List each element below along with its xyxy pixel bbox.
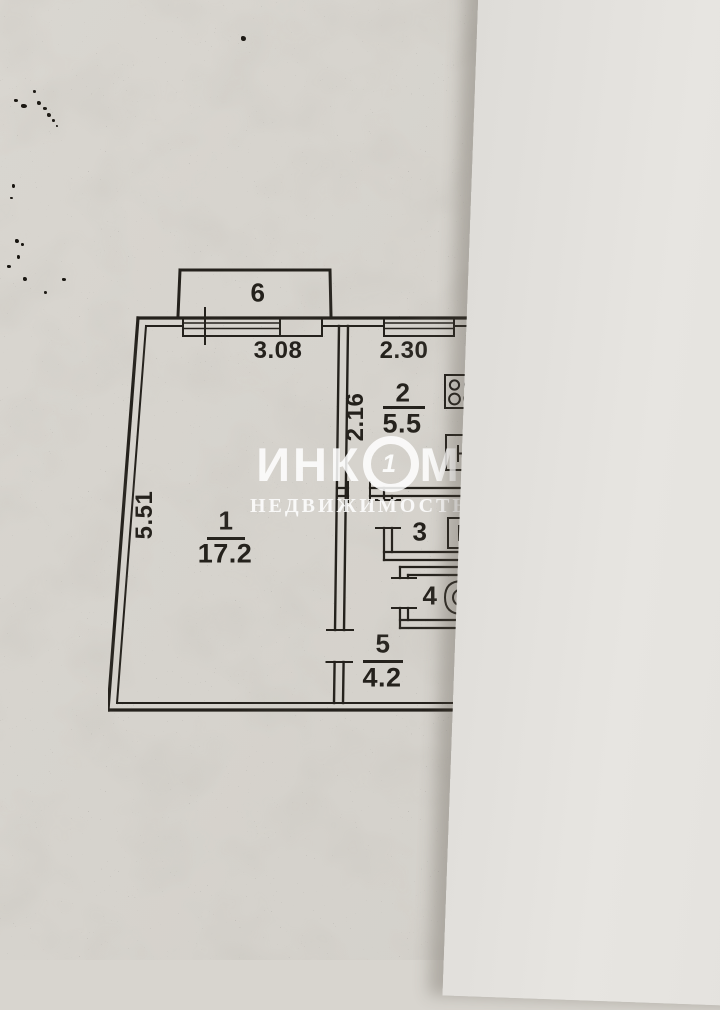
ink-speck bbox=[10, 197, 13, 199]
ink-speck bbox=[43, 107, 47, 110]
hall-number: 5 bbox=[376, 629, 391, 660]
ink-speck bbox=[7, 265, 11, 268]
balcony-number: 6 bbox=[251, 278, 266, 309]
kitchen-width-dim: 2.30 bbox=[380, 337, 429, 365]
ink-speck bbox=[52, 119, 55, 122]
plan-drawing bbox=[108, 260, 508, 720]
bathroom-number: 3 bbox=[413, 517, 428, 548]
toilet-number: 4 bbox=[423, 581, 438, 612]
ink-speck bbox=[37, 101, 41, 105]
living-number: 1 bbox=[219, 506, 234, 537]
ink-speck bbox=[12, 184, 15, 188]
ink-speck bbox=[241, 36, 246, 41]
walls bbox=[108, 270, 507, 710]
ink-speck bbox=[23, 277, 27, 281]
kitchen-depth-dim: 2.16 bbox=[342, 393, 370, 442]
ink-speck bbox=[56, 125, 58, 127]
living-hall-wall bbox=[327, 326, 354, 703]
kitchen-window-hatch bbox=[384, 318, 454, 336]
kitchen-area: 5.5 bbox=[382, 409, 421, 440]
living-area: 17.2 bbox=[198, 539, 253, 570]
ink-speck bbox=[62, 278, 66, 281]
ink-speck bbox=[44, 291, 47, 294]
ink-speck bbox=[21, 104, 27, 108]
ink-speck bbox=[47, 113, 51, 117]
ink-speck bbox=[21, 243, 24, 246]
hall-area: 4.2 bbox=[362, 663, 401, 694]
living-depth-dim: 5.51 bbox=[131, 491, 159, 540]
ink-speck bbox=[14, 99, 18, 102]
kitchen-number: 2 bbox=[396, 378, 411, 409]
overlapping-sheet bbox=[443, 0, 720, 1010]
ink-speck bbox=[17, 255, 20, 259]
living-width-dim: 3.08 bbox=[254, 337, 303, 365]
ink-speck bbox=[33, 90, 36, 93]
ink-speck bbox=[15, 239, 19, 243]
floor-plan: 6 3.08 2.30 2.16 5.51 2 5.5 1 17.2 3 4 5… bbox=[108, 260, 508, 720]
